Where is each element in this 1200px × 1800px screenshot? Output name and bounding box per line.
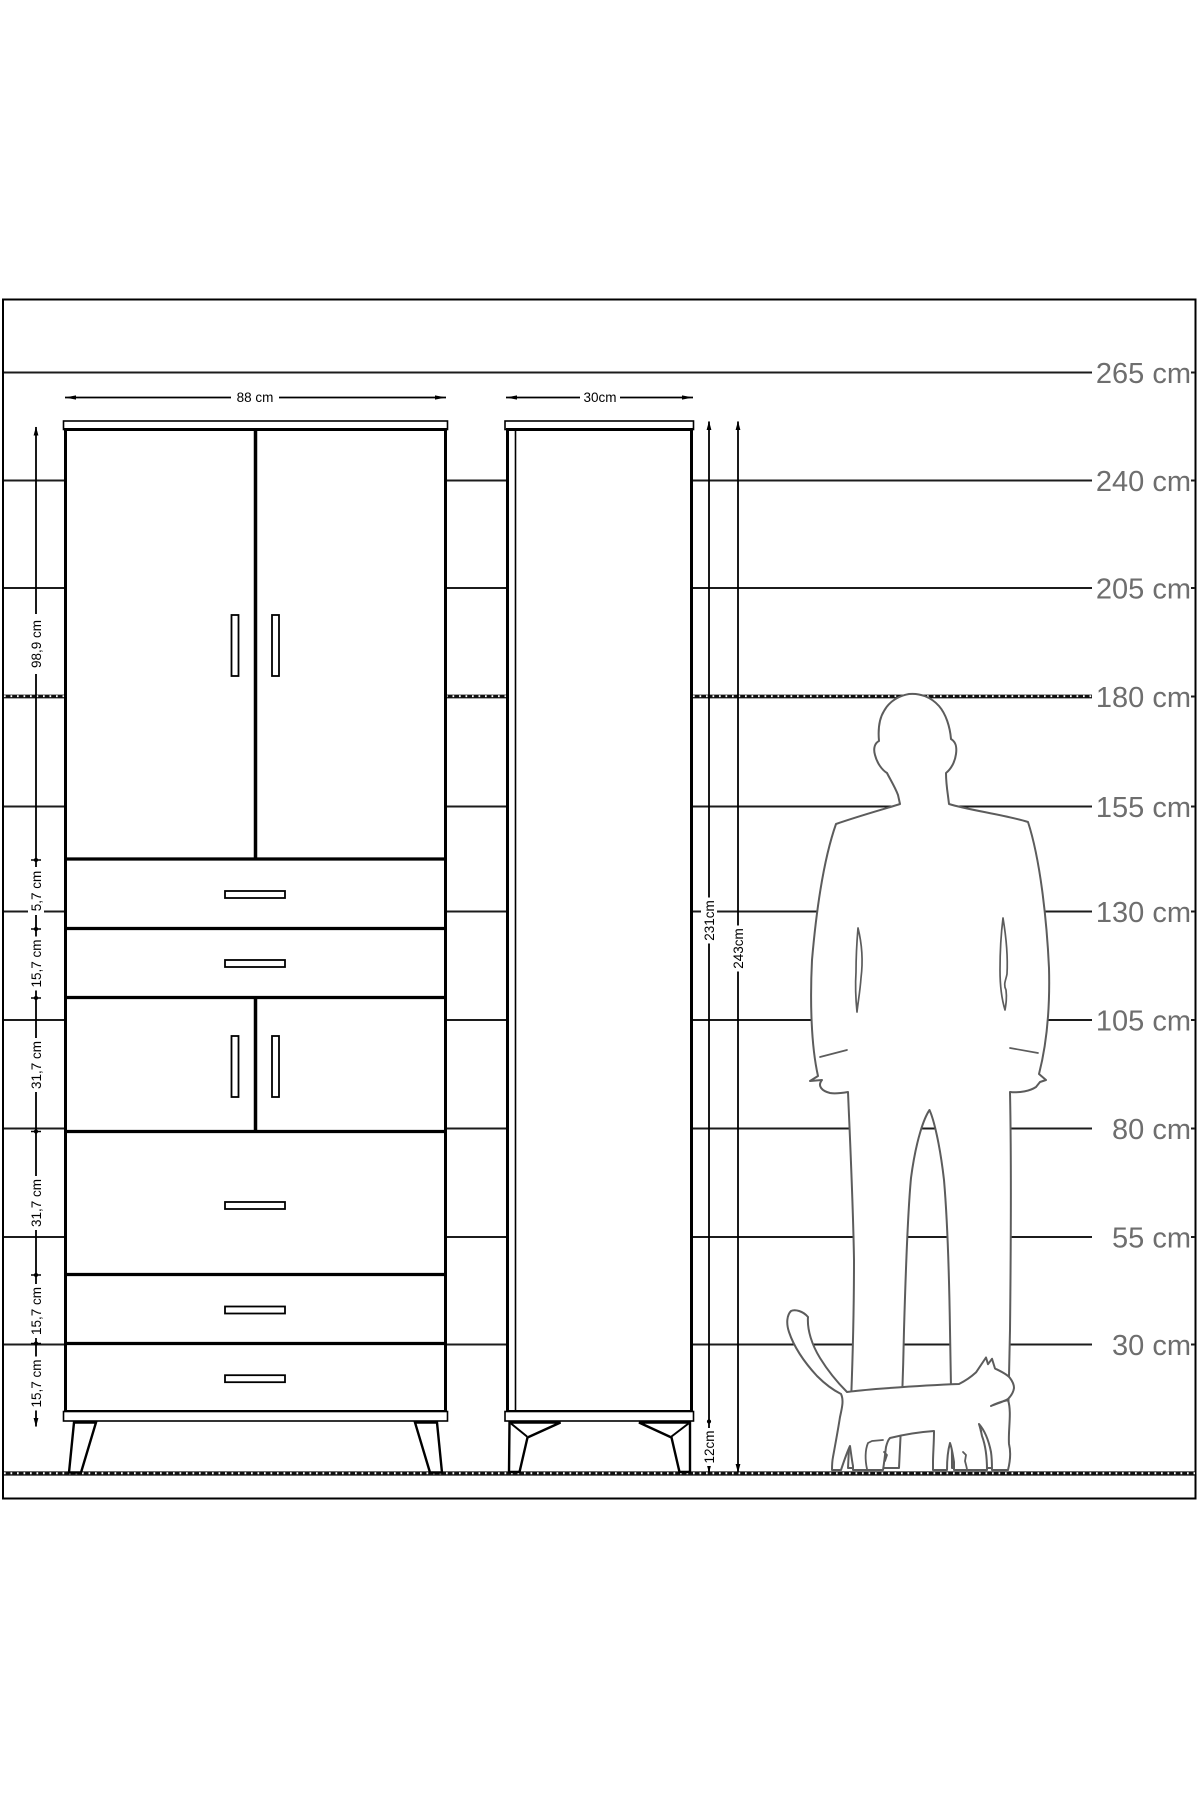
svg-text:31,7 cm: 31,7 cm xyxy=(29,1041,44,1089)
svg-text:88 cm: 88 cm xyxy=(237,390,274,405)
svg-text:155 cm: 155 cm xyxy=(1096,792,1191,824)
svg-text:30 cm: 30 cm xyxy=(1112,1330,1191,1362)
svg-text:105 cm: 105 cm xyxy=(1096,1006,1191,1038)
svg-text:265 cm: 265 cm xyxy=(1096,358,1191,390)
svg-text:205 cm: 205 cm xyxy=(1096,574,1191,606)
svg-text:80 cm: 80 cm xyxy=(1112,1114,1191,1146)
svg-text:31,7 cm: 31,7 cm xyxy=(29,1179,44,1227)
svg-text:15,7 cm: 15,7 cm xyxy=(29,1359,44,1407)
svg-text:5,7 cm: 5,7 cm xyxy=(29,871,44,912)
svg-text:180 cm: 180 cm xyxy=(1096,682,1191,714)
svg-text:231cm: 231cm xyxy=(702,900,717,941)
svg-text:30cm: 30cm xyxy=(583,390,616,405)
svg-text:15,7 cm: 15,7 cm xyxy=(29,939,44,987)
svg-text:15,7 cm: 15,7 cm xyxy=(29,1287,44,1335)
svg-text:243cm: 243cm xyxy=(731,928,746,969)
svg-text:12cm: 12cm xyxy=(702,1430,717,1463)
svg-text:98,9 cm: 98,9 cm xyxy=(29,620,44,668)
svg-text:130 cm: 130 cm xyxy=(1096,897,1191,929)
svg-text:55 cm: 55 cm xyxy=(1112,1223,1191,1255)
svg-text:240 cm: 240 cm xyxy=(1096,466,1191,498)
